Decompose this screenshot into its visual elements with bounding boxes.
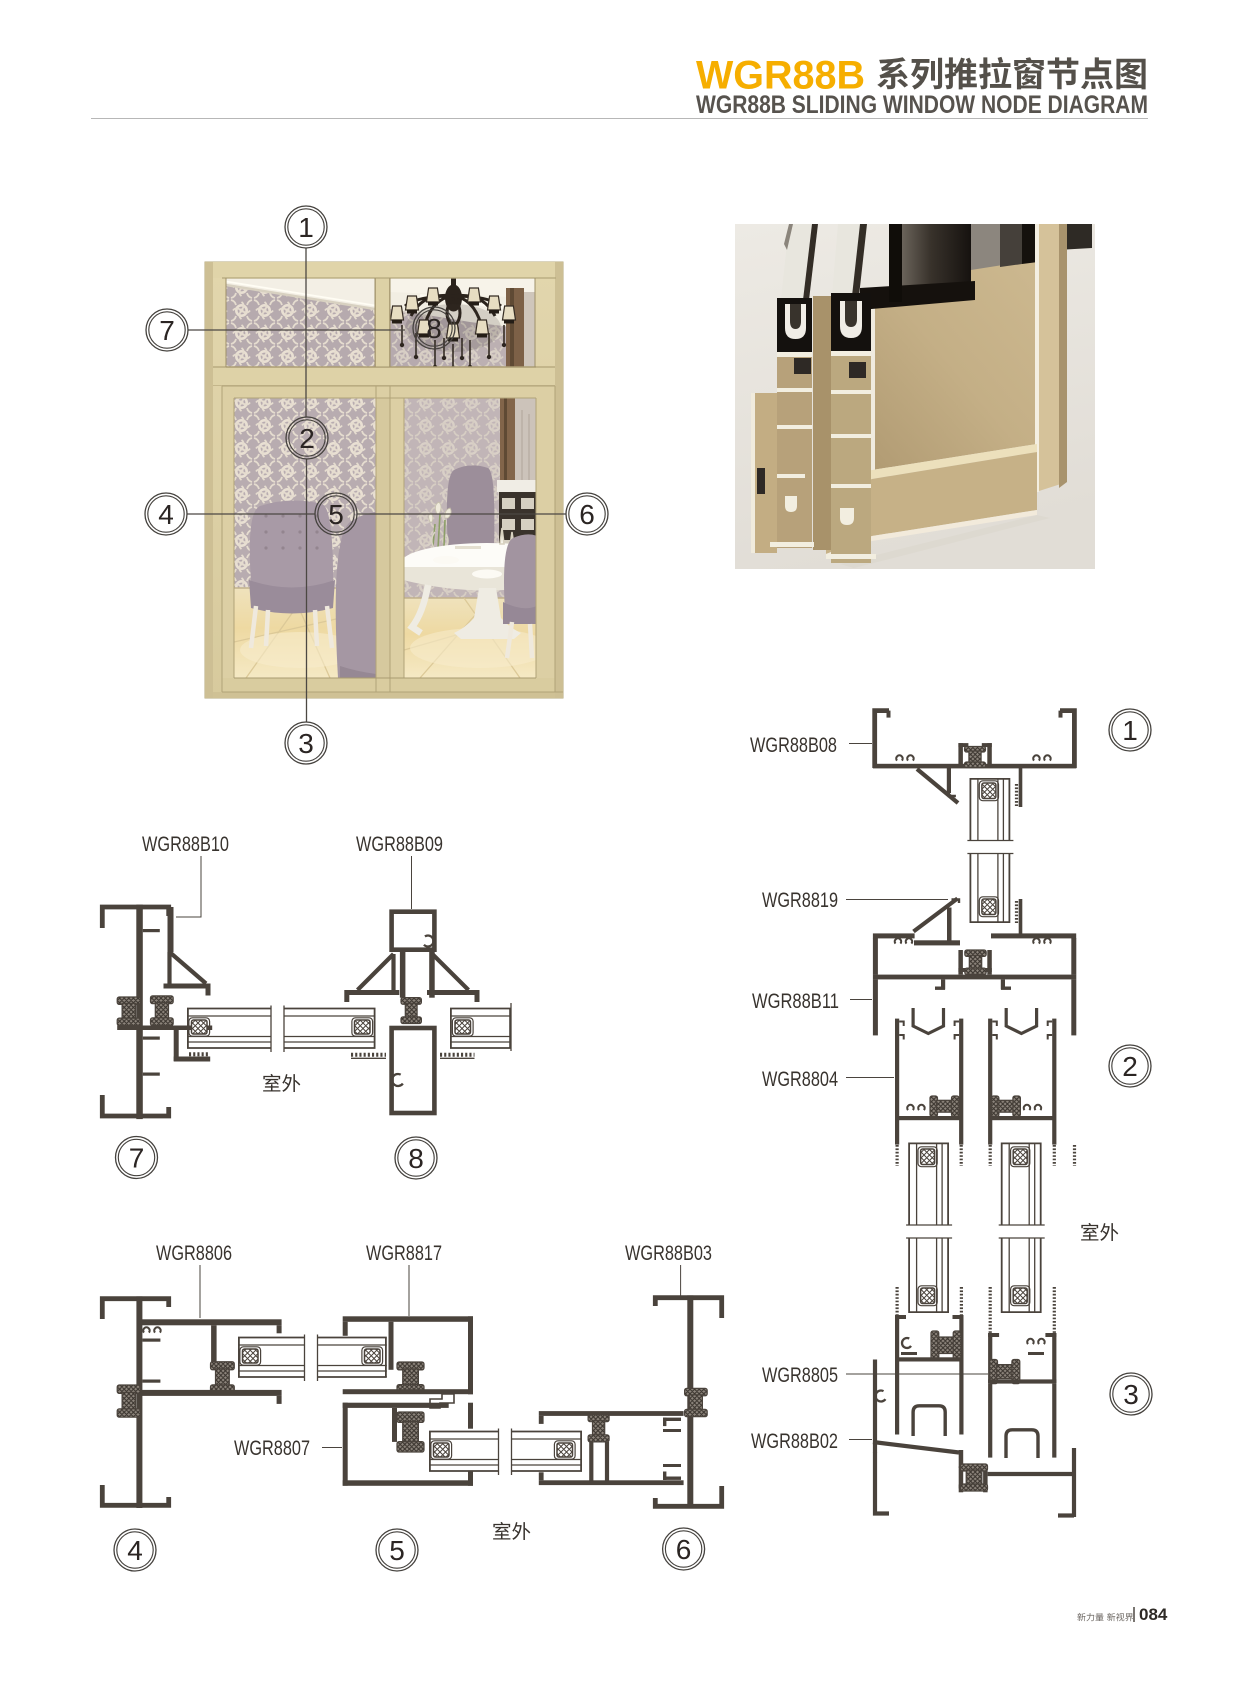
svg-text:8: 8 [408, 1143, 424, 1174]
svg-text:WGR88B09: WGR88B09 [356, 832, 443, 856]
svg-text:3: 3 [1123, 1379, 1139, 1410]
svg-text:WGR8807: WGR8807 [234, 1436, 310, 1460]
svg-text:WGR88B08: WGR88B08 [750, 733, 837, 757]
svg-text:2: 2 [299, 423, 315, 454]
svg-text:WGR8805: WGR8805 [762, 1363, 838, 1387]
svg-text:2: 2 [1122, 1051, 1138, 1082]
svg-text:6: 6 [579, 499, 595, 530]
svg-text:4: 4 [127, 1535, 143, 1566]
svg-text:WGR8819: WGR8819 [762, 888, 838, 912]
svg-text:WGR88B03: WGR88B03 [625, 1241, 712, 1265]
svg-text:7: 7 [159, 315, 175, 346]
svg-text:5: 5 [328, 499, 344, 530]
svg-text:1: 1 [298, 212, 314, 243]
svg-text:WGR88B02: WGR88B02 [751, 1429, 838, 1453]
svg-text:WGR88B SLIDING WINDOW NODE DIA: WGR88B SLIDING WINDOW NODE DIAGRAM [696, 91, 1148, 118]
svg-text:WGR8817: WGR8817 [366, 1241, 442, 1265]
svg-text:1: 1 [1122, 715, 1138, 746]
svg-text:7: 7 [129, 1142, 145, 1173]
svg-text:6: 6 [676, 1534, 692, 1565]
svg-text:WGR8804: WGR8804 [762, 1067, 838, 1091]
svg-text:5: 5 [389, 1535, 405, 1566]
svg-text:WGR8806: WGR8806 [156, 1241, 232, 1265]
svg-text:8: 8 [426, 313, 442, 344]
svg-text:WGR88B10: WGR88B10 [142, 832, 229, 856]
svg-text:3: 3 [298, 728, 314, 759]
svg-text:WGR88B11: WGR88B11 [752, 989, 839, 1013]
svg-text:4: 4 [158, 499, 174, 530]
